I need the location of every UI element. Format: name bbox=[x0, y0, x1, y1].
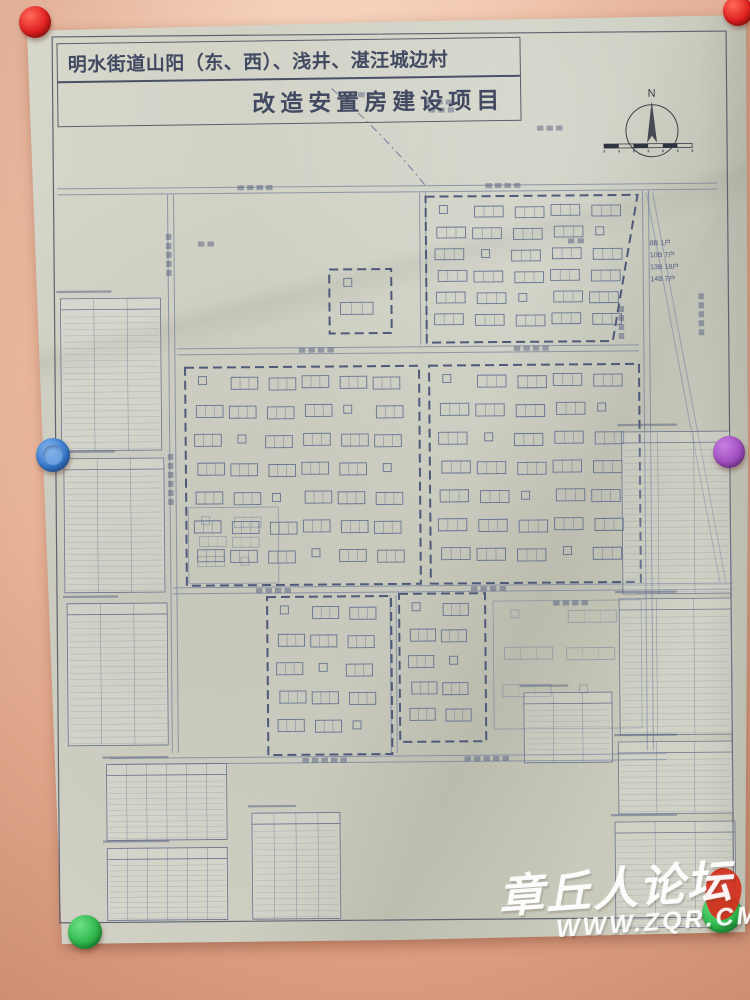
magnet-purple-right bbox=[713, 436, 745, 468]
magnet-red-top-right bbox=[723, 0, 750, 26]
magnet-blue-left bbox=[36, 438, 70, 472]
magnet-red-top-left bbox=[19, 6, 51, 38]
unit-count-line: 8B 1户 bbox=[650, 238, 679, 251]
magnet-green-bottom-left bbox=[68, 915, 102, 949]
photo-scene: N 明水街道山阳（东、西）、浅井、湛汪城边村 改造安置房建设项目 8B 1户 1… bbox=[0, 0, 750, 1000]
unit-count-line: 10B 7户 bbox=[650, 250, 679, 263]
unit-count-line: 13B 18户 bbox=[650, 262, 679, 275]
unit-count-line: 14B 7户 bbox=[650, 274, 679, 287]
project-title-villages: 明水街道山阳（东、西）、浅井、湛汪城边村 bbox=[57, 38, 519, 83]
poster-shadow-wrap bbox=[24, 12, 748, 948]
unit-count-notes: 8B 1户 10B 7户 13B 18户 14B 7户 bbox=[650, 238, 680, 287]
site-plan-poster bbox=[24, 12, 748, 948]
magnet-green-bottom-right bbox=[702, 893, 742, 933]
project-title-name: 改造安置房建设项目 bbox=[58, 77, 521, 126]
poster-title-block: 明水街道山阳（东、西）、浅井、湛汪城边村 改造安置房建设项目 bbox=[56, 37, 521, 127]
